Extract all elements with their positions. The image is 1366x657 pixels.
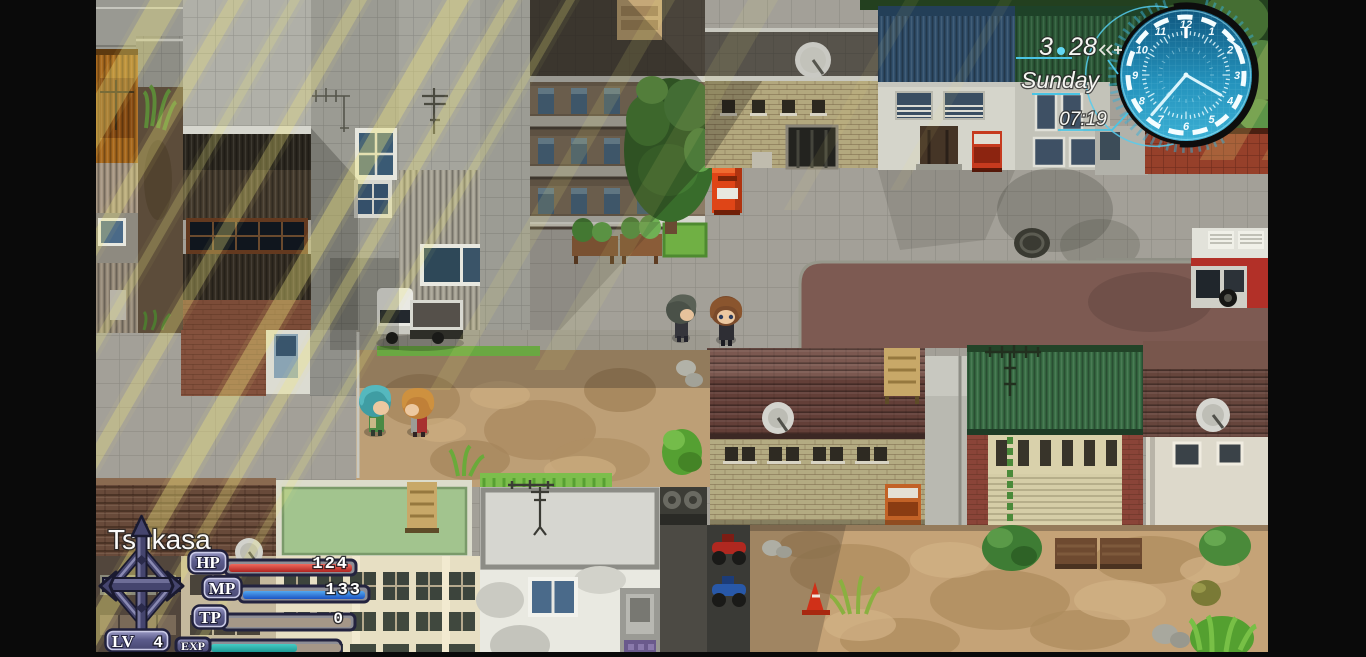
svg-text:MP: MP [209, 579, 235, 598]
svg-text:TP: TP [199, 608, 221, 627]
svg-text:4: 4 [153, 634, 163, 652]
svg-text:3: 3 [1234, 70, 1240, 82]
svg-text:7: 7 [1157, 114, 1164, 126]
svg-text:28: 28 [1068, 33, 1097, 61]
svg-text:124: 124 [312, 555, 349, 574]
svg-text:LV: LV [112, 632, 135, 651]
svg-text:6: 6 [1183, 121, 1190, 133]
svg-text:5: 5 [1208, 114, 1215, 126]
svg-text:3: 3 [1039, 33, 1053, 61]
svg-text:10: 10 [1136, 45, 1149, 57]
svg-text:4: 4 [1226, 96, 1233, 108]
svg-text:Sunday: Sunday [1021, 67, 1101, 93]
svg-text:11: 11 [1155, 26, 1166, 38]
svg-text:133: 133 [325, 581, 362, 600]
svg-text:2: 2 [1226, 45, 1233, 57]
svg-text:EXP: EXP [181, 639, 205, 653]
svg-text:HP: HP [196, 553, 220, 572]
svg-text:0: 0 [333, 610, 343, 628]
svg-text:1: 1 [1208, 26, 1214, 38]
svg-text:8: 8 [1139, 96, 1146, 108]
svg-text:9: 9 [1132, 70, 1139, 82]
svg-text:12: 12 [1180, 19, 1192, 31]
svg-text:07:19: 07:19 [1059, 109, 1107, 130]
